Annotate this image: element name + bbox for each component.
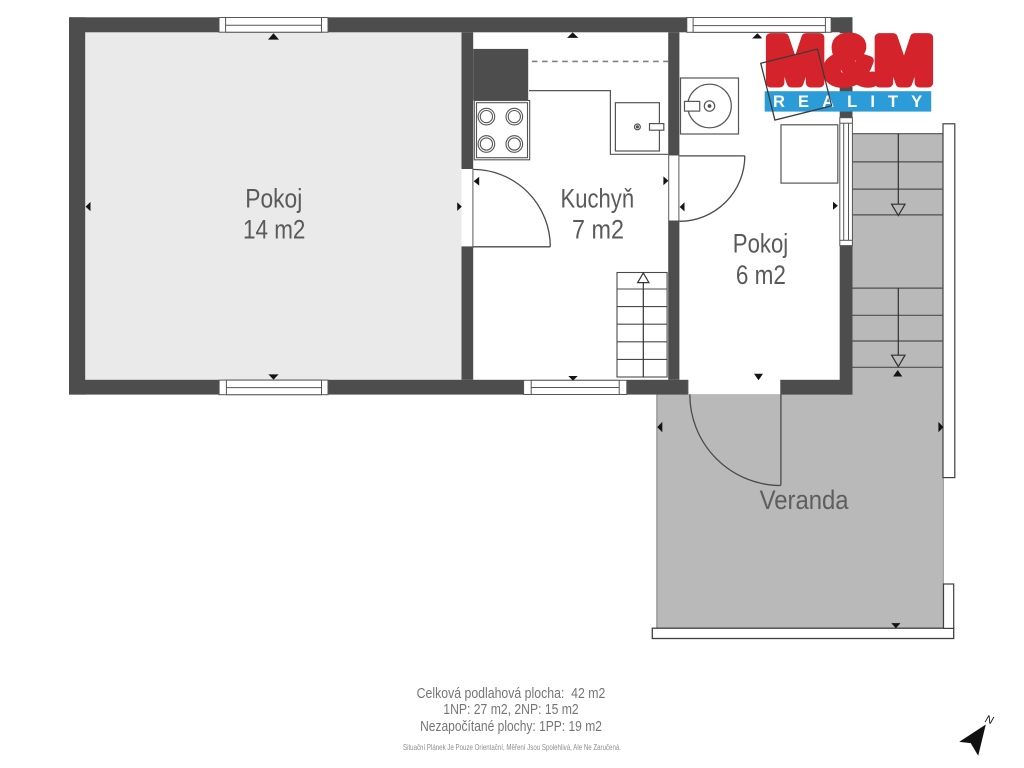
svg-text:7 m2: 7 m2 <box>572 215 624 245</box>
svg-text:1NP: 27 m2, 2NP: 15 m2: 1NP: 27 m2, 2NP: 15 m2 <box>443 701 578 718</box>
svg-text:14 m2: 14 m2 <box>243 215 305 245</box>
svg-text:Pokoj: Pokoj <box>245 184 302 214</box>
svg-text:Nezapočítané plochy: 1PP: 19 m: Nezapočítané plochy: 1PP: 19 m2 <box>420 718 602 735</box>
svg-text:Veranda: Veranda <box>760 485 849 515</box>
svg-text:Celková podlahová plocha: 42: Celková podlahová plocha: 42 m2 <box>417 685 606 702</box>
svg-text:Situační Plánek Je Pouze Orien: Situační Plánek Je Pouze Orientační, Měř… <box>403 742 621 752</box>
svg-text:REALITY: REALITY <box>773 93 935 111</box>
svg-text:Pokoj: Pokoj <box>733 228 788 258</box>
svg-text:6 m2: 6 m2 <box>736 260 786 290</box>
svg-text:Kuchyň: Kuchyň <box>561 184 635 214</box>
svg-text:M&M: M&M <box>766 23 933 97</box>
